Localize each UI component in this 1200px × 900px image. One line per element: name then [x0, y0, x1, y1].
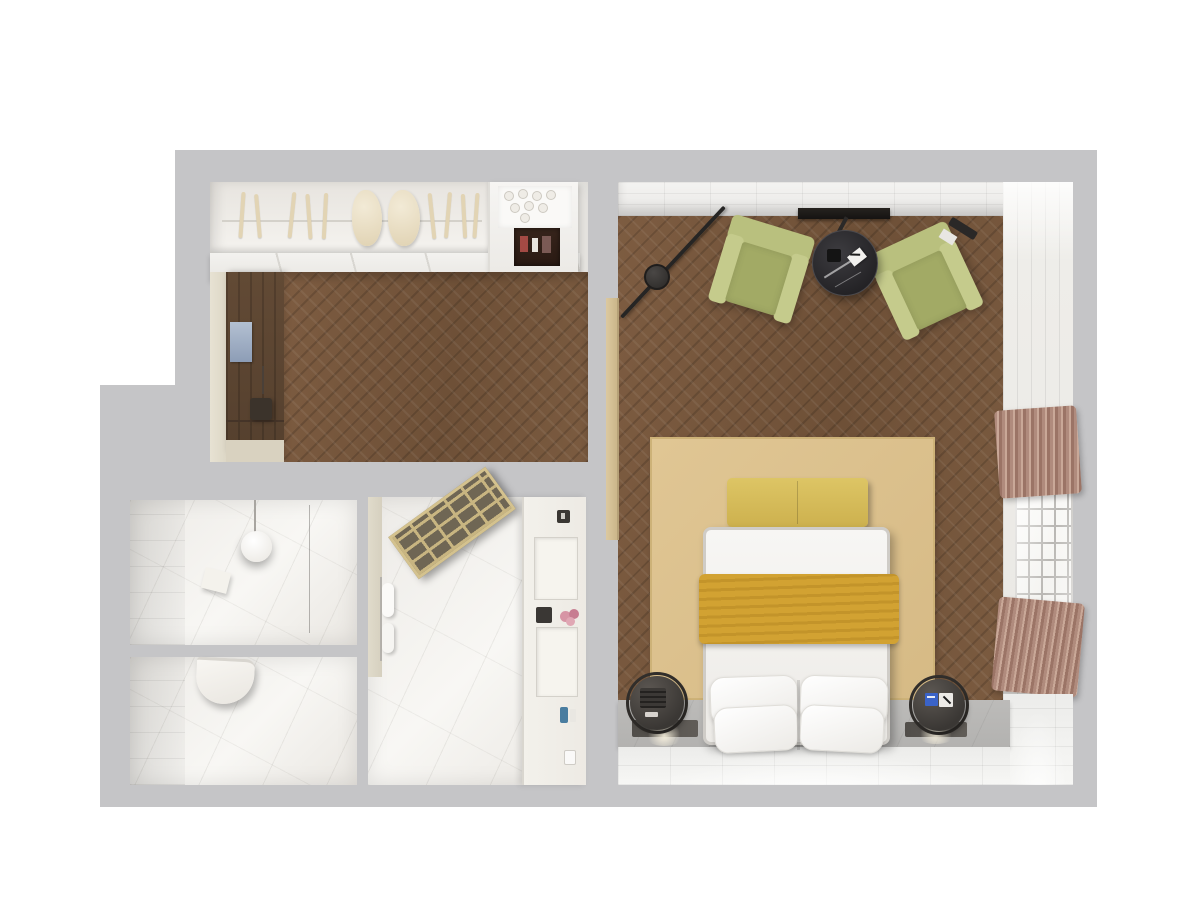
- flowers: [560, 609, 582, 627]
- nightstand-left: [630, 676, 684, 730]
- room-shower: [368, 497, 586, 785]
- room-bedroom: [618, 182, 1073, 785]
- towel: [382, 583, 394, 617]
- glassware: [510, 203, 520, 213]
- toilet: [195, 657, 255, 706]
- window-wall-floor-tiles: [1003, 694, 1073, 785]
- glassware: [546, 190, 556, 200]
- wall-picture: [230, 322, 252, 362]
- pillow-front-right: [799, 704, 885, 754]
- wood-panel: [226, 272, 284, 452]
- glass-cup: [564, 750, 576, 765]
- bed: [703, 527, 890, 745]
- wall-control: [557, 510, 570, 523]
- hanger: [472, 193, 479, 238]
- glassware: [520, 213, 530, 223]
- bedroom-tile-walkway: [618, 747, 1010, 785]
- lattice-window: [1015, 480, 1073, 612]
- washbasin: [241, 531, 272, 562]
- coffee-station: [488, 182, 578, 272]
- vanity-wall: [522, 497, 586, 785]
- glassware: [532, 191, 542, 201]
- room-toilet: [130, 657, 357, 785]
- hanger: [428, 193, 437, 239]
- wall-control: [536, 607, 552, 623]
- arc-lamp-shade: [644, 264, 670, 290]
- hanger: [288, 192, 297, 238]
- wardrobe: [210, 182, 490, 253]
- stool: [250, 398, 272, 420]
- table-notepad: [847, 247, 867, 266]
- room-hallway: [210, 182, 588, 462]
- hanger: [461, 194, 467, 238]
- coffee-table: [812, 230, 878, 296]
- door-leaf: [606, 298, 619, 540]
- glassware: [538, 203, 548, 213]
- soap-tray: [201, 567, 231, 594]
- hanger: [238, 192, 245, 238]
- glassware: [518, 189, 528, 199]
- garment: [388, 190, 420, 246]
- towel: [382, 623, 394, 653]
- bench: [727, 478, 868, 527]
- toiletries: [560, 707, 580, 725]
- glassware: [504, 191, 514, 201]
- room-washbasin: [130, 500, 357, 645]
- hanger: [444, 192, 452, 238]
- hallway-left-wall-strip: [210, 272, 226, 462]
- shelf-niche: [534, 537, 578, 600]
- throw-blanket: [699, 574, 899, 644]
- curtain-top: [994, 405, 1082, 499]
- hallway-wood-floor: [284, 272, 588, 462]
- table-cup: [827, 249, 841, 262]
- garment: [352, 190, 382, 246]
- window-wall: [1003, 182, 1073, 785]
- floor-plan-render: [0, 0, 1200, 900]
- basin-stem: [254, 500, 256, 534]
- nightstand-right: [913, 679, 965, 731]
- glass-divider: [309, 505, 310, 633]
- curtain-bottom: [991, 596, 1085, 697]
- valet-stand: [262, 366, 264, 394]
- shelf-niche: [536, 627, 578, 697]
- minibar-compartment: [514, 228, 560, 266]
- glassware: [524, 201, 534, 211]
- hanger: [254, 194, 262, 238]
- hanger: [322, 193, 328, 239]
- hanger: [305, 194, 312, 239]
- pillow-front-left: [713, 704, 799, 754]
